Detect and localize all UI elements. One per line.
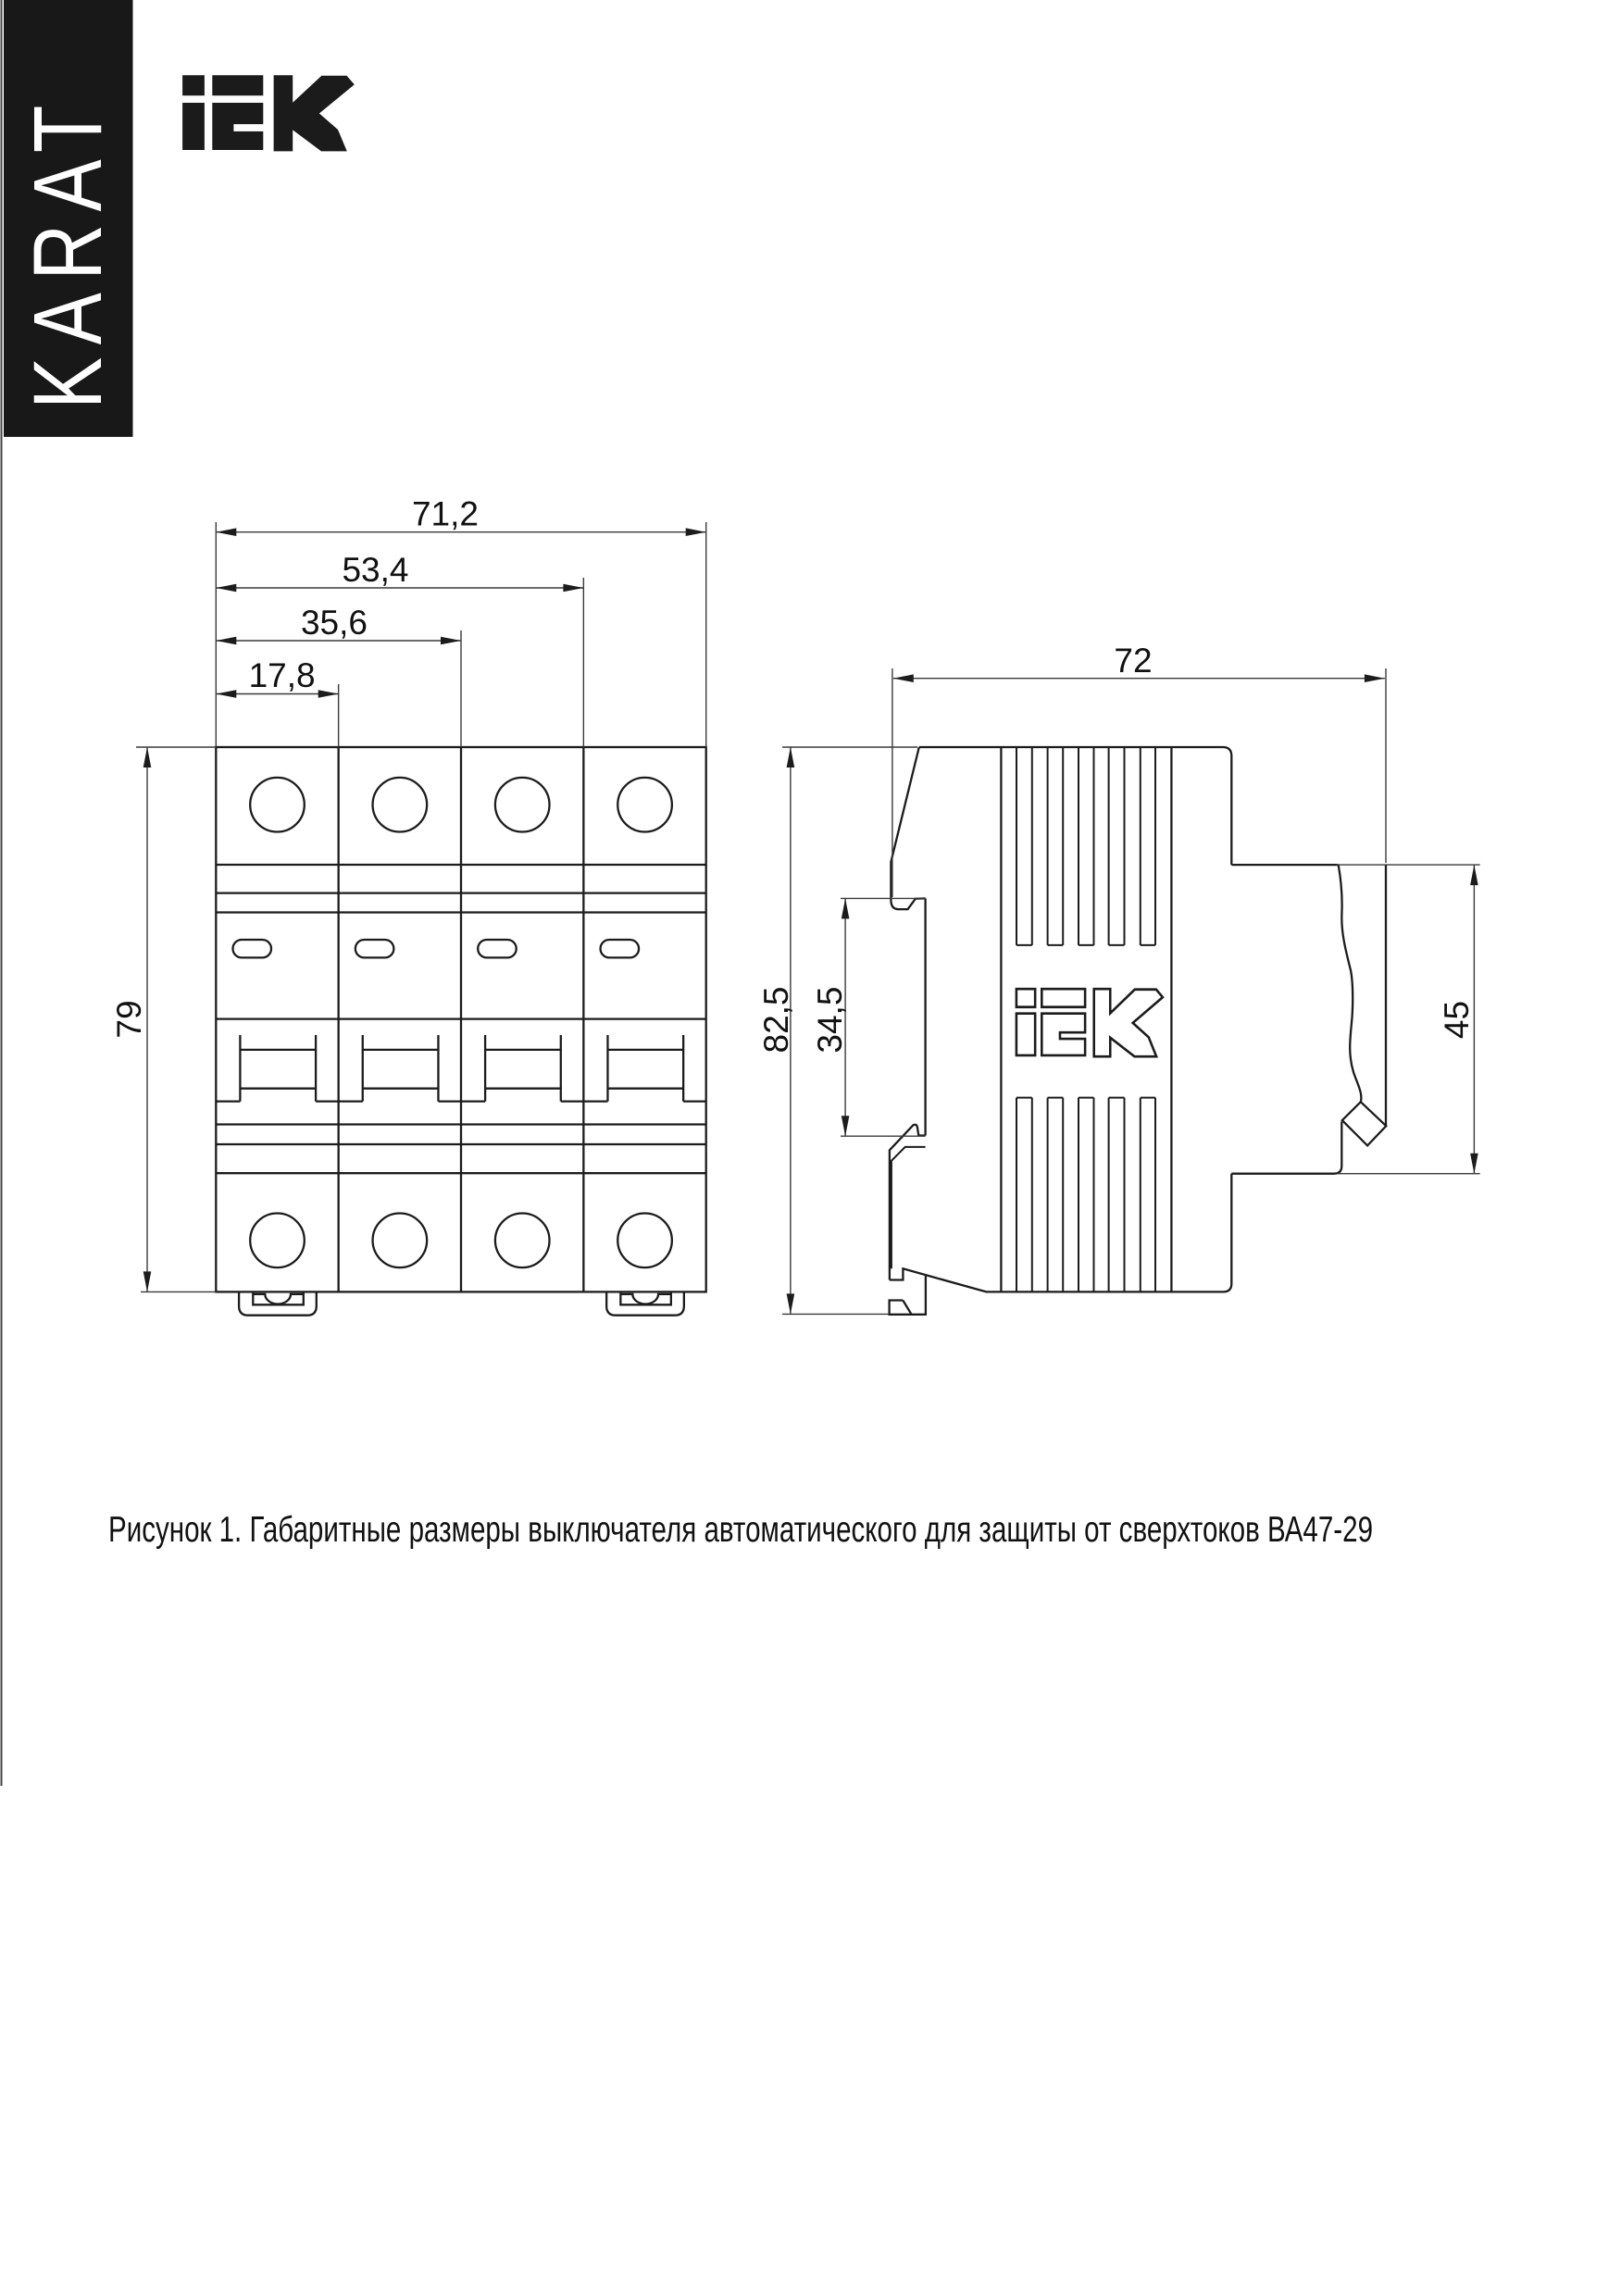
svg-text:79: 79 [110, 1000, 148, 1038]
svg-text:45: 45 [1438, 1001, 1476, 1039]
svg-text:Рисунок 1. Габаритные размеры: Рисунок 1. Габаритные размеры выключател… [108, 1510, 1373, 1550]
svg-text:KARAT: KARAT [14, 93, 122, 409]
svg-text:34,5: 34,5 [811, 987, 849, 1054]
svg-text:82,5: 82,5 [757, 986, 795, 1053]
svg-text:72: 72 [1114, 642, 1152, 680]
svg-text:17,8: 17,8 [249, 656, 316, 694]
svg-text:53,4: 53,4 [342, 551, 408, 589]
svg-text:35,6: 35,6 [301, 604, 368, 642]
svg-text:71,2: 71,2 [412, 495, 479, 533]
